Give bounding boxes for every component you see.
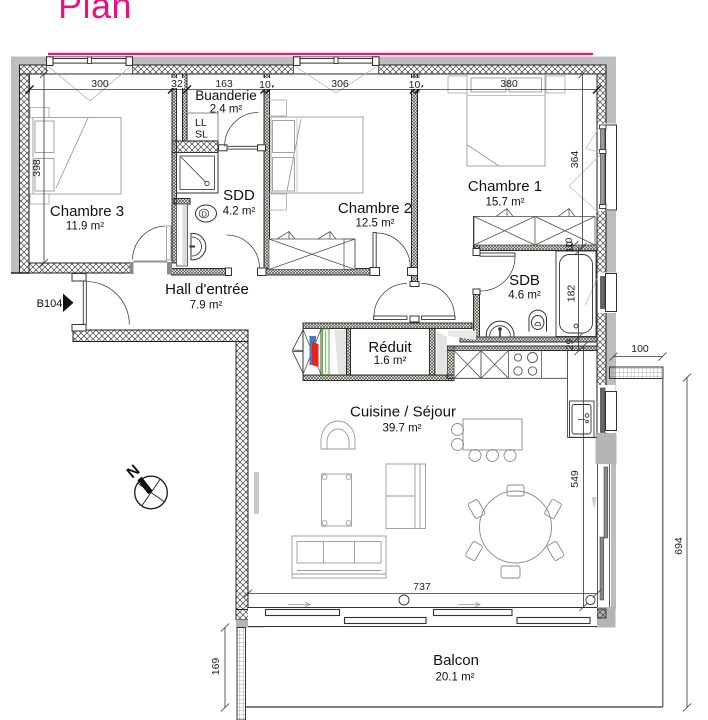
svg-text:737: 737: [413, 581, 431, 593]
svg-text:306: 306: [331, 78, 349, 90]
svg-text:4.6 m²: 4.6 m²: [508, 290, 541, 302]
svg-text:380: 380: [500, 78, 518, 90]
svg-text:100: 100: [631, 343, 649, 355]
svg-text:Hall d'entrée: Hall d'entrée: [165, 281, 249, 298]
svg-text:182: 182: [566, 285, 578, 303]
svg-text:Plan: Plan: [58, 0, 132, 26]
svg-text:SDB: SDB: [509, 272, 540, 289]
svg-text:LL: LL: [195, 117, 207, 129]
svg-text:Réduit: Réduit: [368, 339, 412, 356]
svg-text:1.6 m²: 1.6 m²: [374, 355, 407, 367]
svg-text:20.1 m²: 20.1 m²: [436, 672, 475, 684]
svg-text:Balcon: Balcon: [433, 652, 479, 669]
svg-text:Buanderie: Buanderie: [195, 88, 257, 103]
svg-text:300: 300: [91, 78, 109, 90]
svg-text:SL: SL: [195, 129, 208, 141]
svg-text:549: 549: [569, 470, 581, 488]
svg-text:Chambre 3: Chambre 3: [50, 203, 124, 220]
svg-text:169: 169: [210, 658, 222, 676]
svg-text:D: D: [202, 209, 208, 218]
svg-text:12.5 m²: 12.5 m²: [356, 218, 395, 230]
svg-text:11.9 m²: 11.9 m²: [66, 221, 104, 233]
svg-text:694: 694: [673, 537, 685, 555]
svg-text:Chambre 1: Chambre 1: [468, 178, 542, 195]
svg-text:15.7 m²: 15.7 m²: [486, 197, 525, 209]
svg-text:7.9 m²: 7.9 m²: [190, 300, 223, 312]
svg-text:39.7 m²: 39.7 m²: [383, 423, 422, 435]
svg-text:B104: B104: [37, 298, 63, 310]
svg-text:364: 364: [569, 151, 581, 169]
svg-text:Chambre 2: Chambre 2: [338, 200, 412, 217]
svg-text:398: 398: [31, 159, 43, 177]
svg-text:Cuisine / Séjour: Cuisine / Séjour: [350, 404, 456, 421]
svg-text:SDD: SDD: [223, 187, 255, 204]
svg-text:10: 10: [564, 238, 575, 249]
svg-text:10: 10: [259, 79, 271, 91]
svg-text:4.2 m²: 4.2 m²: [223, 206, 256, 218]
svg-text:32: 32: [171, 78, 183, 90]
svg-text:29: 29: [565, 339, 576, 351]
svg-text:10: 10: [409, 79, 421, 91]
